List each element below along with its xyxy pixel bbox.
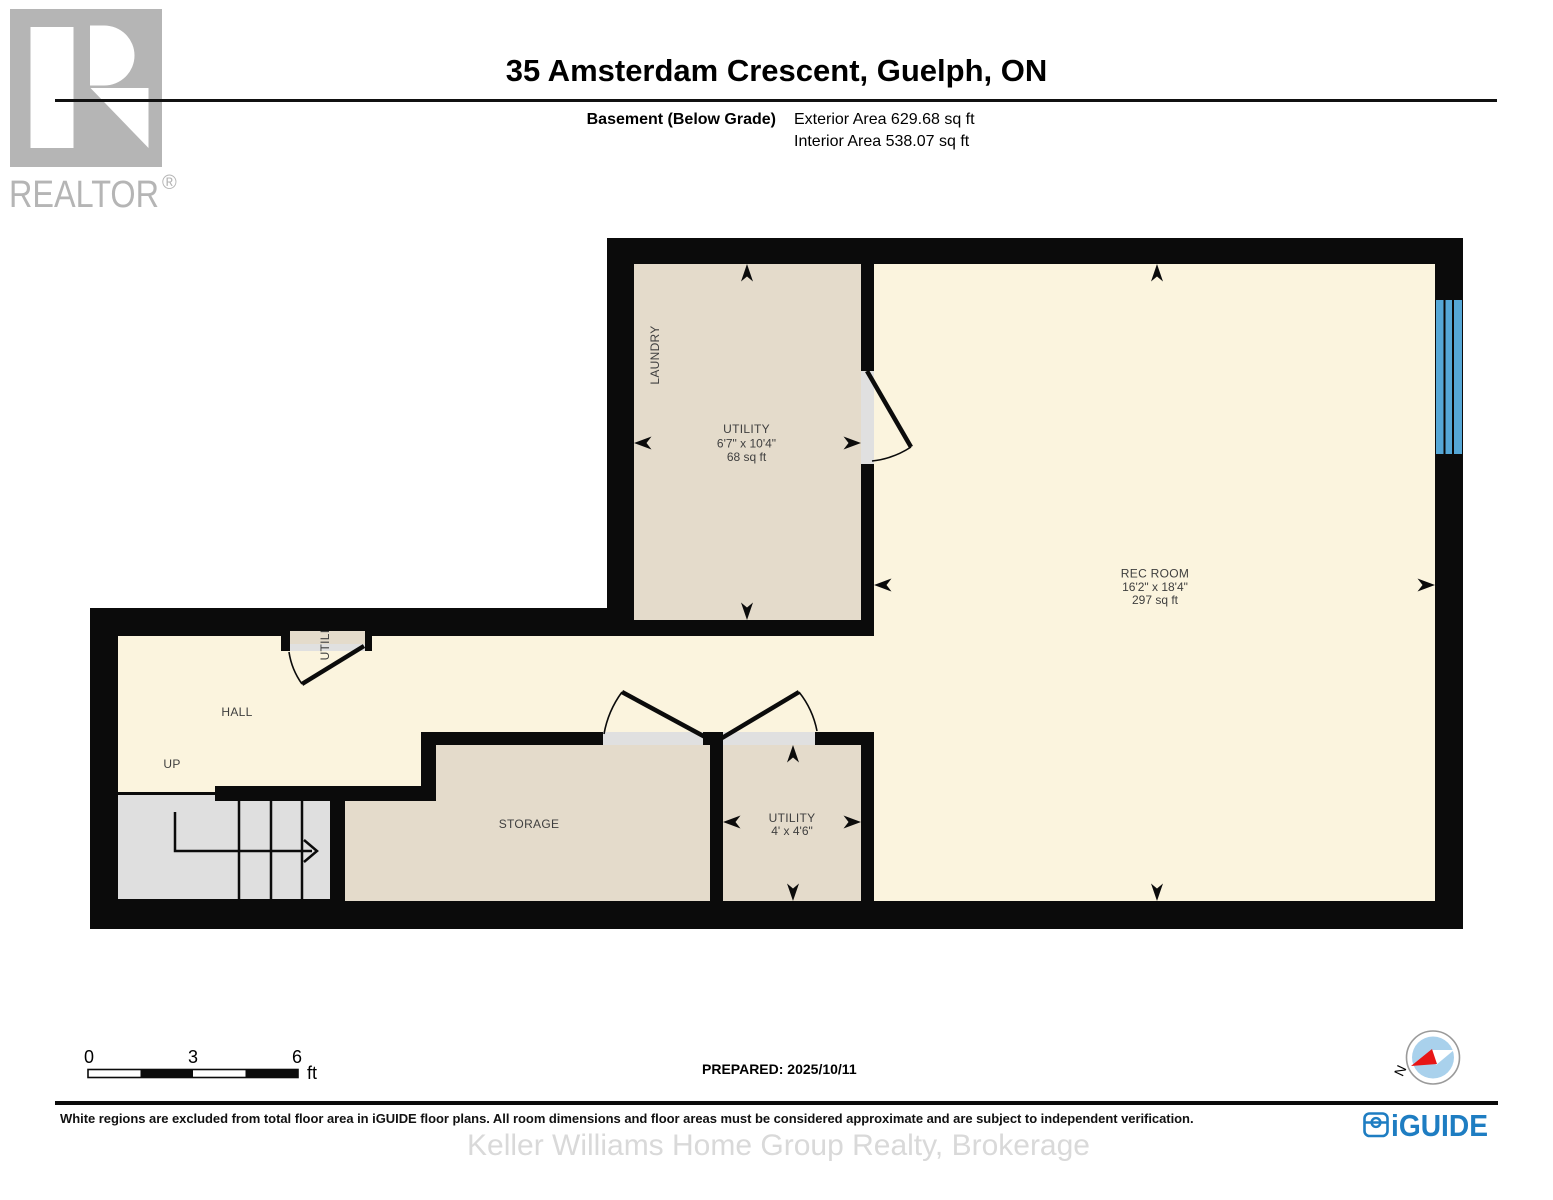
svg-text:UTILITY: UTILITY (723, 422, 770, 436)
svg-text:UTILI: UTILI (318, 630, 332, 661)
svg-text:16'2" x 18'4": 16'2" x 18'4" (1122, 580, 1188, 594)
svg-text:4' x 4'6": 4' x 4'6" (771, 824, 813, 838)
svg-text:N: N (1391, 1063, 1410, 1079)
svg-text:UP: UP (163, 757, 180, 771)
svg-text:0: 0 (84, 1047, 94, 1067)
svg-text:6: 6 (292, 1047, 302, 1067)
svg-text:STORAGE: STORAGE (499, 817, 560, 831)
svg-text:REC ROOM: REC ROOM (1121, 567, 1189, 581)
svg-text:ft: ft (307, 1063, 317, 1083)
svg-text:3: 3 (188, 1047, 198, 1067)
svg-text:iGUIDE: iGUIDE (1391, 1108, 1488, 1143)
svg-text:LAUNDRY: LAUNDRY (648, 325, 662, 384)
svg-text:68 sq ft: 68 sq ft (727, 450, 767, 464)
svg-text:UTILITY: UTILITY (769, 811, 816, 825)
svg-text:297 sq ft: 297 sq ft (1132, 593, 1179, 607)
svg-text:HALL: HALL (221, 705, 252, 719)
svg-text:6'7" x 10'4": 6'7" x 10'4" (717, 437, 776, 451)
